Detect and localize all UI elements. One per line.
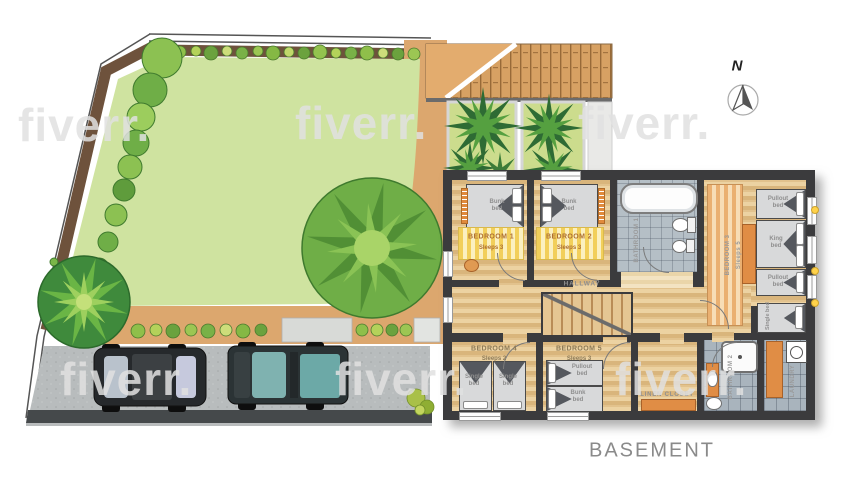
pillow — [463, 401, 488, 409]
door-opening — [660, 331, 684, 344]
road — [26, 410, 432, 423]
exterior-stairs — [426, 44, 612, 102]
bunk-ladder — [598, 188, 605, 224]
car-teal — [228, 342, 348, 410]
pillow — [796, 245, 804, 267]
curb — [26, 423, 432, 426]
pillow — [497, 401, 522, 409]
bathroom1-vestibule — [621, 272, 693, 288]
pillow — [795, 306, 803, 329]
window — [807, 275, 817, 299]
pillow — [542, 188, 552, 204]
interior-staircase — [541, 292, 633, 337]
pillow — [512, 188, 522, 204]
linen-shelf — [641, 399, 696, 411]
wall-light — [811, 299, 819, 307]
wall-light — [811, 267, 819, 275]
window — [459, 412, 501, 421]
bunk-ladder — [461, 188, 468, 224]
pillow — [548, 363, 556, 383]
bidet — [672, 240, 687, 253]
basement-site-plan: BEDROOM 1 Sleeps 3 Bunk bed BEDROOM 2 Sl… — [0, 0, 853, 480]
north-compass-icon — [728, 85, 758, 115]
pillow — [796, 223, 804, 245]
pouf — [464, 259, 479, 272]
pillow — [542, 206, 552, 222]
bathtub — [620, 183, 698, 214]
window — [467, 171, 507, 181]
car-gray — [94, 344, 206, 412]
wall-light — [811, 206, 819, 214]
laundry-counter — [766, 341, 783, 398]
pillow — [512, 206, 522, 222]
window — [443, 297, 453, 323]
window — [807, 236, 817, 264]
sink-basin — [707, 371, 718, 387]
window — [443, 251, 453, 277]
window — [541, 171, 581, 181]
toilet — [706, 397, 722, 410]
wardrobe — [742, 224, 756, 284]
blanket-fold — [460, 362, 491, 384]
pillow — [796, 272, 804, 293]
pillow — [548, 389, 556, 409]
toilet-tank — [687, 217, 696, 233]
pillow — [796, 192, 804, 216]
bidet-tank — [686, 239, 695, 253]
window — [547, 412, 589, 421]
washing-machine — [786, 341, 807, 363]
